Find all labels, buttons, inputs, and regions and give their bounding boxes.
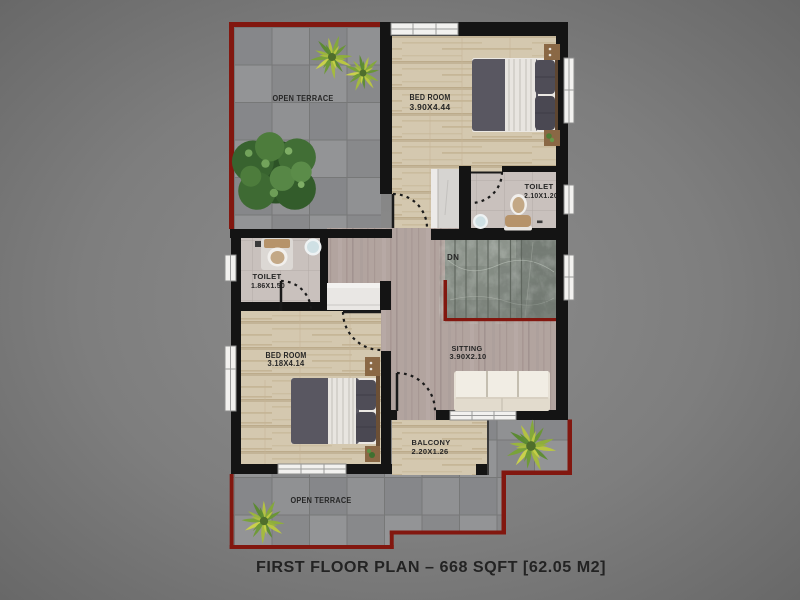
svg-text:3.18X4.14: 3.18X4.14 bbox=[268, 359, 305, 368]
svg-text:BED ROOM: BED ROOM bbox=[410, 93, 451, 102]
svg-text:TOILET: TOILET bbox=[525, 182, 554, 191]
svg-text:TOILET: TOILET bbox=[253, 272, 282, 281]
svg-text:FIRST FLOOR PLAN – 668 SQFT [6: FIRST FLOOR PLAN – 668 SQFT [62.05 M2] bbox=[256, 559, 606, 576]
svg-text:2.10X1.20: 2.10X1.20 bbox=[524, 191, 558, 200]
svg-text:2.20X1.26: 2.20X1.26 bbox=[412, 447, 449, 456]
svg-text:3.90X2.10: 3.90X2.10 bbox=[450, 352, 487, 361]
svg-text:OPEN TERRACE: OPEN TERRACE bbox=[273, 94, 334, 103]
svg-text:DN: DN bbox=[447, 253, 459, 262]
svg-text:BALCONY: BALCONY bbox=[412, 438, 451, 447]
svg-text:3.90X4.44: 3.90X4.44 bbox=[410, 103, 451, 112]
svg-text:OPEN TERRACE: OPEN TERRACE bbox=[291, 496, 352, 505]
